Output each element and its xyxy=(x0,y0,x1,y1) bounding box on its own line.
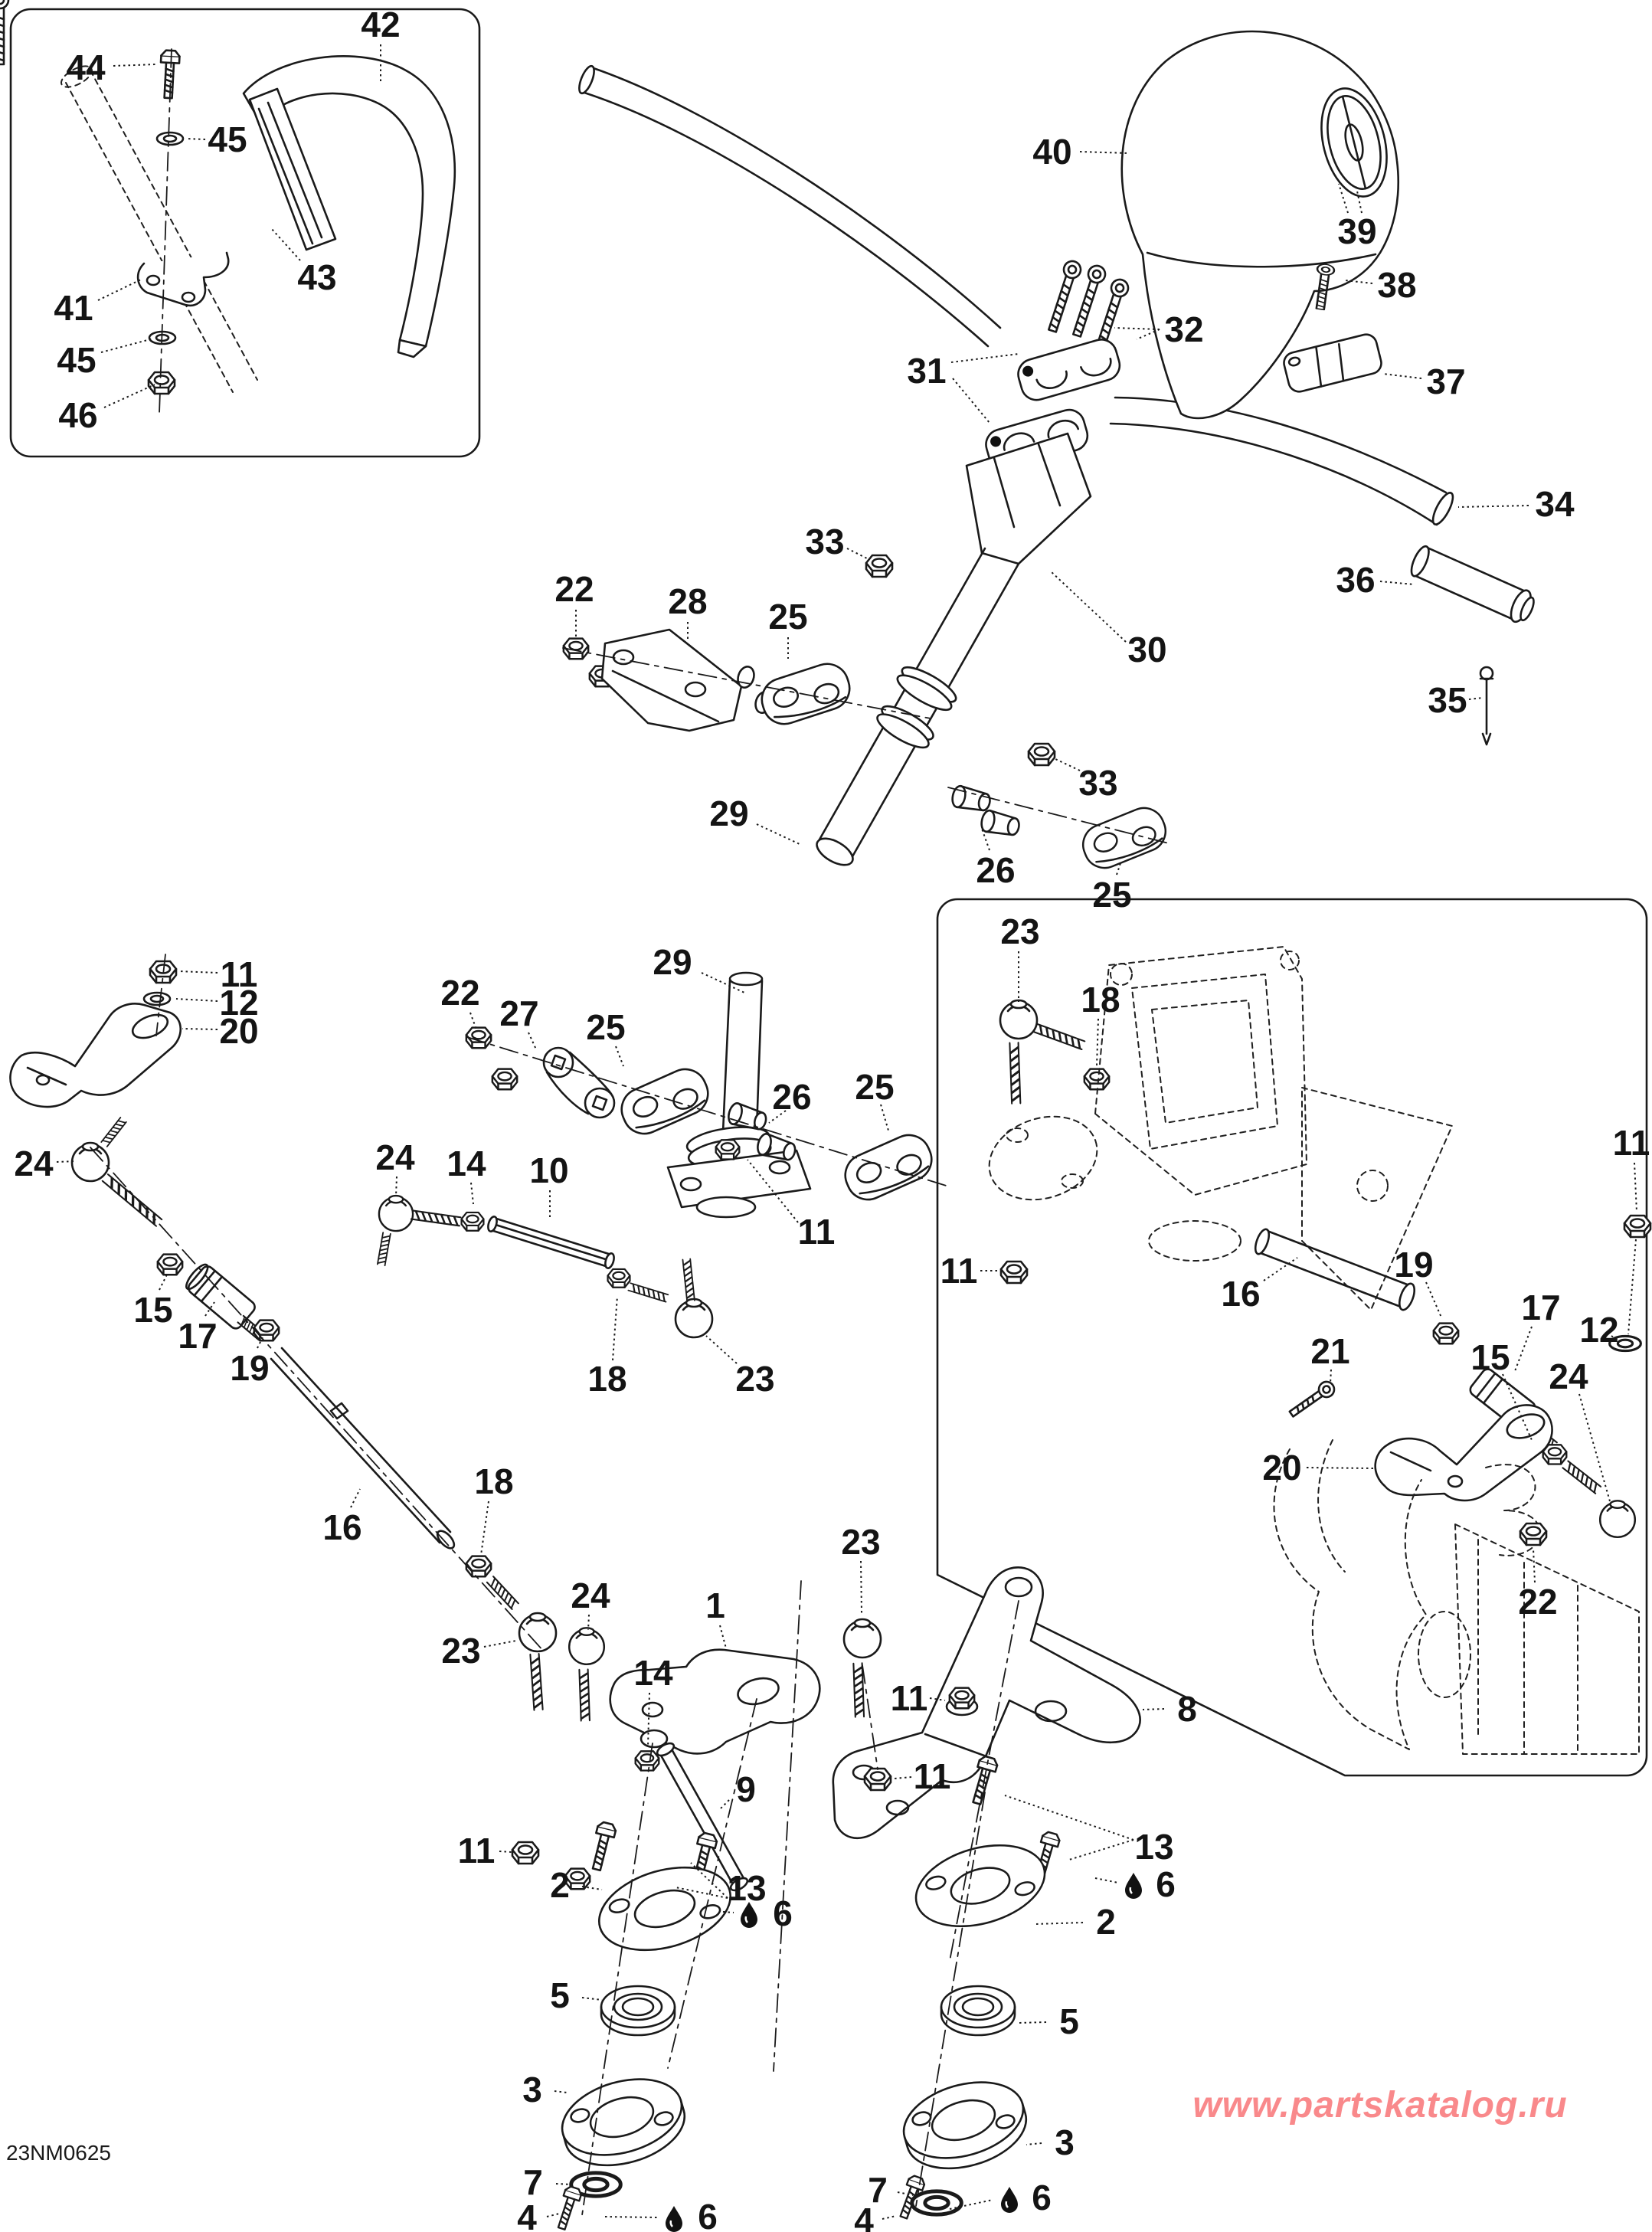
callout-11-74: 11 xyxy=(891,1678,928,1718)
callout-44-0: 44 xyxy=(66,47,106,87)
callout-22-26: 22 xyxy=(440,973,479,1013)
callout-45-5: 45 xyxy=(57,340,96,380)
leader-line-20-58 xyxy=(1307,1468,1374,1468)
leader-line-31-12 xyxy=(953,378,990,423)
callout-12-53: 12 xyxy=(1579,1310,1618,1350)
callout-6-72: 6 xyxy=(698,2197,718,2232)
flanged-nut-11-br xyxy=(947,1688,977,1715)
callout-25-24: 25 xyxy=(1092,875,1131,915)
nut-46 xyxy=(149,372,175,394)
leader-line-13-77 xyxy=(1005,1795,1134,1840)
leader-line-36-14 xyxy=(1380,581,1414,584)
callout-41-4: 41 xyxy=(54,288,93,328)
leader-line-23-36 xyxy=(706,1336,737,1363)
leader-line-43-3 xyxy=(271,228,300,260)
callout-24-60: 24 xyxy=(571,1576,610,1615)
leader-line-25-30 xyxy=(881,1105,888,1131)
callout-19-51: 19 xyxy=(1394,1245,1433,1285)
callout-20-39: 20 xyxy=(219,1011,258,1051)
callout-11-54: 11 xyxy=(1613,1123,1650,1163)
oil-drop-icon xyxy=(666,2206,682,2232)
bolt-21 xyxy=(1287,1379,1337,1420)
callout-6-84: 6 xyxy=(1032,2178,1052,2217)
callout-11-76: 11 xyxy=(914,1756,951,1796)
callout-1-62: 1 xyxy=(705,1586,725,1625)
bolt-44 xyxy=(159,50,180,98)
callout-28-20: 28 xyxy=(668,581,707,621)
callout-27-27: 27 xyxy=(499,993,538,1033)
thread-24 xyxy=(1563,1461,1601,1494)
leader-line-4-71 xyxy=(547,2214,559,2217)
callout-2-79: 2 xyxy=(1096,1902,1116,1942)
bearing-5-right xyxy=(941,1986,1015,2035)
nut-15-left xyxy=(158,1255,182,1275)
leader-line-31-12 xyxy=(951,354,1019,362)
callout-14-61: 14 xyxy=(633,1653,673,1693)
steering-arm-20-inset xyxy=(1376,1405,1552,1501)
leader-line-12-38 xyxy=(176,999,218,1001)
support-right xyxy=(833,1567,1140,2220)
leader-line-3-81 xyxy=(1026,2143,1042,2145)
callout-38-9: 38 xyxy=(1377,265,1416,305)
tie-rod-10-assembly xyxy=(378,1196,712,1337)
callout-23-36: 23 xyxy=(735,1359,774,1399)
callout-31-12: 31 xyxy=(907,351,946,391)
leader-line-37-10 xyxy=(1383,374,1421,378)
nut-14 xyxy=(636,1751,659,1770)
washer-7-right xyxy=(912,2191,962,2214)
callout-26-29: 26 xyxy=(772,1077,811,1117)
callout-33-18: 33 xyxy=(1078,763,1117,803)
callout-17-52: 17 xyxy=(1521,1288,1560,1327)
callout-39-8: 39 xyxy=(1337,211,1376,251)
support-bracket-8 xyxy=(833,1567,1140,1838)
leader-line-20-39 xyxy=(182,1029,218,1029)
parts-diagram: 4442454341454640393837323134363035333322… xyxy=(0,0,1652,2232)
leader-line-21-57 xyxy=(1330,1370,1331,1383)
steering-arm-20 xyxy=(10,1003,180,1107)
callout-11-49: 11 xyxy=(940,1251,978,1291)
leader-line-17-52 xyxy=(1515,1327,1532,1371)
tie-rod-end-24-bl xyxy=(569,1628,604,1720)
leader-line-24-32 xyxy=(396,1177,397,1196)
nut-18-inset xyxy=(1084,1069,1109,1090)
callout-24-40: 24 xyxy=(14,1144,54,1183)
link-27 xyxy=(544,1048,614,1118)
callout-9-63: 9 xyxy=(736,1769,756,1809)
callout-26-23: 26 xyxy=(976,850,1015,890)
bolt-4-left xyxy=(554,2185,583,2231)
callout-30-15: 30 xyxy=(1127,630,1166,669)
nut-33-upper xyxy=(866,555,892,577)
callout-45-2: 45 xyxy=(208,119,247,159)
callout-33-17: 33 xyxy=(805,522,844,561)
leader-line-23-46 xyxy=(484,1641,516,1647)
clamp-25-c xyxy=(615,1062,715,1141)
leader-line-34-13 xyxy=(1458,506,1529,507)
callout-24-56: 24 xyxy=(1549,1357,1588,1396)
leader-line-11-54 xyxy=(1628,1239,1636,1334)
callout-17-42: 17 xyxy=(178,1316,217,1356)
grip-pin-35 xyxy=(1480,667,1493,745)
oil-drops xyxy=(666,1873,1142,2232)
bracket-28 xyxy=(602,630,741,731)
washer-45-upper xyxy=(157,133,183,145)
callout-40-7: 40 xyxy=(1032,132,1071,172)
callout-19-43: 19 xyxy=(230,1348,269,1388)
nut-19-left xyxy=(254,1321,279,1341)
callout-29-22: 29 xyxy=(709,794,748,833)
callout-25-30: 25 xyxy=(855,1067,894,1107)
leader-line-46-6 xyxy=(104,385,155,407)
grip-36 xyxy=(1408,543,1538,626)
callout-3-69: 3 xyxy=(522,2070,542,2109)
leader-line-23-73 xyxy=(861,1561,862,1613)
leader-line-13-77 xyxy=(1069,1840,1134,1860)
support-shaft-16 xyxy=(1253,1228,1418,1312)
leader-line-25-28 xyxy=(616,1046,623,1066)
leader-line-45-5 xyxy=(101,339,153,352)
leader-line-11-37 xyxy=(179,971,218,973)
steering-riser-30 xyxy=(967,434,1091,564)
leader-line-45-2 xyxy=(185,139,205,139)
leader-line-8-75 xyxy=(1143,1709,1164,1710)
nut-22-inset xyxy=(1520,1523,1546,1545)
leader-line-18-45 xyxy=(481,1501,489,1555)
leader-line-1-62 xyxy=(720,1625,726,1648)
nut-22-d xyxy=(492,1069,517,1090)
callout-22-59: 22 xyxy=(1518,1582,1557,1622)
callout-36-14: 36 xyxy=(1336,560,1375,600)
leader-line-16-44 xyxy=(351,1489,360,1507)
callout-42-1: 42 xyxy=(361,5,400,44)
callout-5-68: 5 xyxy=(550,1975,570,2015)
leader-line-4-83 xyxy=(882,2216,896,2219)
callout-23-47: 23 xyxy=(1000,911,1039,951)
callout-8-75: 8 xyxy=(1177,1689,1197,1729)
callout-18-48: 18 xyxy=(1081,980,1120,1019)
callout-21-57: 21 xyxy=(1310,1331,1349,1371)
bearing-5-left xyxy=(601,1986,675,2035)
callout-29-25: 29 xyxy=(653,942,692,982)
callout-32-11: 32 xyxy=(1164,309,1203,349)
leader-line-29-22 xyxy=(757,824,800,844)
callout-6-78: 6 xyxy=(1156,1864,1176,1904)
leader-line-35-16 xyxy=(1469,698,1483,699)
plate-3-left xyxy=(553,2067,693,2178)
phantom-support-bracket xyxy=(978,947,1452,1310)
bushing-26-b xyxy=(980,810,1021,839)
nut-11-bl xyxy=(512,1842,538,1864)
nut-18-left xyxy=(466,1556,491,1577)
callout-35-16: 35 xyxy=(1428,680,1467,720)
nut-19-inset xyxy=(1434,1324,1458,1344)
callout-46-6: 46 xyxy=(58,395,97,435)
leader-line-11-64 xyxy=(499,1851,512,1852)
callout-15-41: 15 xyxy=(133,1290,172,1330)
oil-drop-icon xyxy=(1125,1873,1142,1899)
callout-22-19: 22 xyxy=(554,569,594,609)
callout-37-10: 37 xyxy=(1426,362,1465,401)
nut-11-inset-right xyxy=(1624,1216,1650,1237)
callout-34-13: 34 xyxy=(1535,484,1575,524)
callout-15-55: 15 xyxy=(1470,1337,1510,1377)
leader-line-11-54 xyxy=(1634,1163,1637,1212)
parts-diagram-page: 4442454341454640393837323134363035333322… xyxy=(0,0,1652,2232)
leader-line-2-79 xyxy=(1035,1923,1083,1924)
callout-18-35: 18 xyxy=(587,1359,626,1399)
leader-line-27-27 xyxy=(528,1033,536,1049)
inset-box-right xyxy=(937,899,1647,1775)
leader-line-33-18 xyxy=(1054,758,1080,771)
leader-line-32-11 xyxy=(1114,328,1160,329)
handle-pad-43 xyxy=(250,89,335,250)
leader-line-33-17 xyxy=(847,548,867,558)
callout-23-46: 23 xyxy=(441,1631,480,1671)
left-tie-rod xyxy=(10,954,556,1710)
leader-line-41-4 xyxy=(98,279,142,300)
callout-16-44: 16 xyxy=(322,1507,361,1547)
callout-3-81: 3 xyxy=(1055,2122,1075,2162)
nut-33-lower xyxy=(1029,744,1055,765)
callout-23-73: 23 xyxy=(841,1522,880,1562)
leader-line-18-35 xyxy=(613,1296,617,1360)
leader-line-9-63 xyxy=(720,1800,729,1809)
callout-18-45: 18 xyxy=(474,1461,513,1501)
callout-25-28: 25 xyxy=(586,1007,625,1047)
plate-2-right xyxy=(907,1831,1055,1940)
leader-line-40-7 xyxy=(1080,152,1129,153)
leader-line-44-0 xyxy=(113,64,156,66)
callout-2-67: 2 xyxy=(550,1865,570,1905)
callout-24-32: 24 xyxy=(375,1137,415,1177)
oil-drop-icon xyxy=(1001,2187,1018,2213)
inset-steering-support xyxy=(937,899,1650,1775)
clamp-41 xyxy=(138,253,228,306)
tie-rod-end-24 xyxy=(72,1118,162,1226)
callout-14-33: 14 xyxy=(447,1144,486,1183)
leader-line-14-33 xyxy=(471,1183,473,1204)
leader-line-30-15 xyxy=(1051,571,1126,642)
callout-43-3: 43 xyxy=(297,257,336,297)
leader-line-6-66 xyxy=(723,1912,734,1913)
bolt-13-bl-a xyxy=(587,1821,617,1872)
leader-line-18-48 xyxy=(1097,1019,1098,1066)
tie-rod-end-23-inset xyxy=(1000,1000,1084,1103)
leader-line-6-78 xyxy=(1095,1878,1118,1883)
nut-11-inset-left xyxy=(1001,1262,1027,1283)
leader-line-3-69 xyxy=(554,2091,567,2093)
callout-10-34: 10 xyxy=(529,1150,568,1190)
watermark: www.partskatalog.ru xyxy=(1192,2085,1567,2126)
tie-rod-end-24-inset xyxy=(1600,1501,1635,1537)
callout-11-31: 11 xyxy=(798,1212,836,1252)
tie-rod-end-23 xyxy=(487,1576,556,1710)
callout-6-66: 6 xyxy=(773,1893,793,1933)
sheet-code: 23NM0625 xyxy=(6,2141,111,2165)
callout-13-77: 13 xyxy=(1134,1827,1173,1867)
leader-line-5-68 xyxy=(582,1998,602,2000)
callout-7-70: 7 xyxy=(523,2162,543,2202)
plate-3-right xyxy=(895,2070,1035,2181)
washer-12-arm xyxy=(144,993,170,1005)
callout-13-65: 13 xyxy=(727,1868,766,1908)
callout-5-80: 5 xyxy=(1059,2001,1079,2041)
callout-4-71: 4 xyxy=(517,2198,537,2232)
clamp-block-37 xyxy=(1282,332,1384,394)
clamp-25-b xyxy=(1077,802,1172,874)
callout-20-58: 20 xyxy=(1262,1448,1301,1487)
leader-line-19-51 xyxy=(1426,1282,1441,1317)
callout-4-83: 4 xyxy=(854,2201,874,2232)
leader-line-6-72 xyxy=(605,2217,657,2217)
callout-11-64: 11 xyxy=(458,1831,496,1870)
leader-line-5-80 xyxy=(1019,2022,1046,2023)
nut-11-br-lower xyxy=(865,1769,891,1790)
callouts: 4442454341454640393837323134363035333322… xyxy=(14,5,1650,2232)
callout-16-50: 16 xyxy=(1221,1274,1260,1314)
nut-11-column xyxy=(716,1140,740,1159)
plate-2-left xyxy=(590,1854,741,1965)
callout-25-21: 25 xyxy=(768,597,807,637)
leader-line-22-59 xyxy=(1533,1549,1535,1582)
